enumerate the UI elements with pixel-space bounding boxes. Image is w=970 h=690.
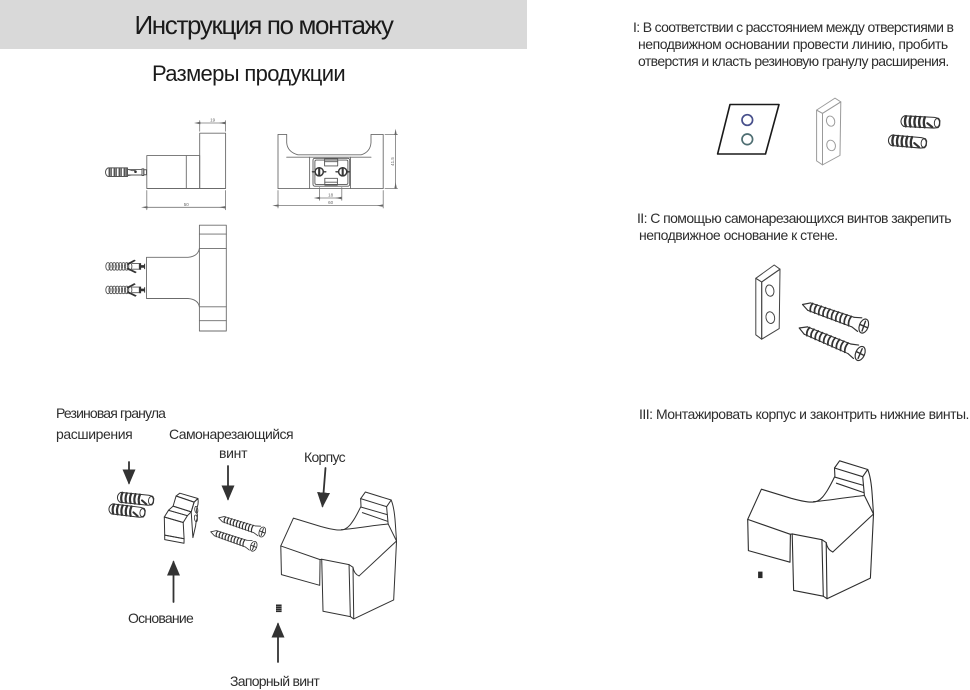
svg-text:60: 60 [328, 200, 334, 205]
svg-text:18: 18 [328, 193, 334, 198]
svg-text:41.5: 41.5 [390, 157, 395, 166]
svg-text:19: 19 [210, 118, 216, 123]
svg-text:50: 50 [184, 202, 190, 207]
